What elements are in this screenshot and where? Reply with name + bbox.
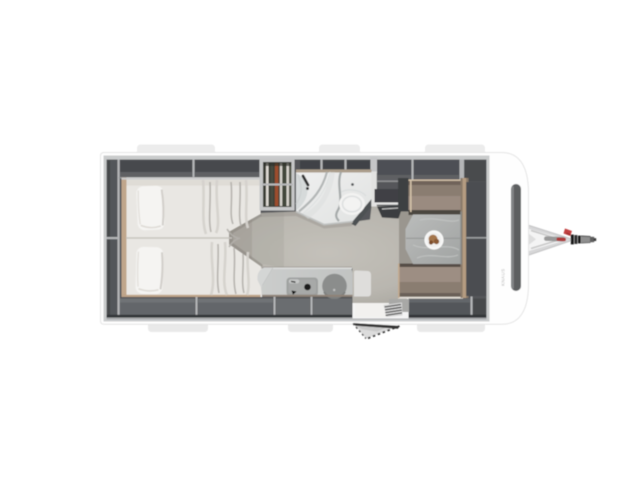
svg-text:KNAUS: KNAUS bbox=[501, 268, 506, 286]
